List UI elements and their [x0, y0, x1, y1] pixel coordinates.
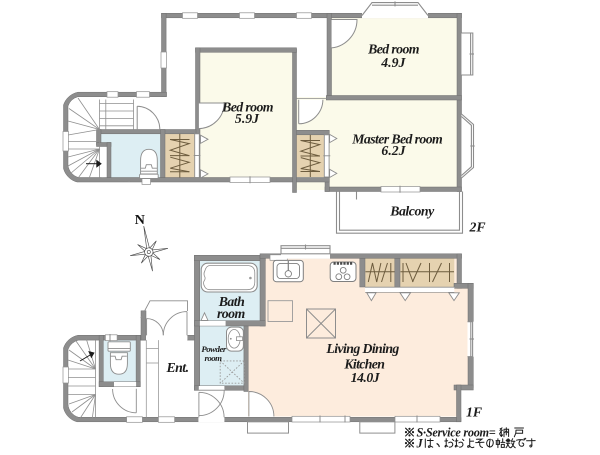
svg-text:room: room — [217, 306, 246, 321]
svg-text:1F: 1F — [466, 405, 482, 420]
svg-text:4.9J: 4.9J — [380, 55, 406, 70]
svg-text:Balcony: Balcony — [389, 204, 435, 219]
svg-text:J: J — [416, 436, 424, 450]
svg-text:2F: 2F — [468, 220, 485, 235]
svg-text:5.9J: 5.9J — [235, 111, 260, 126]
svg-text:S·Service room=: S·Service room= — [417, 425, 496, 439]
svg-text:Living Dining: Living Dining — [325, 341, 399, 356]
svg-text:14.0J: 14.0J — [351, 370, 381, 385]
svg-text:N: N — [135, 213, 145, 228]
svg-text:Ent.: Ent. — [166, 360, 189, 375]
svg-text:6.2J: 6.2J — [381, 143, 406, 158]
svg-text:room: room — [204, 353, 222, 363]
